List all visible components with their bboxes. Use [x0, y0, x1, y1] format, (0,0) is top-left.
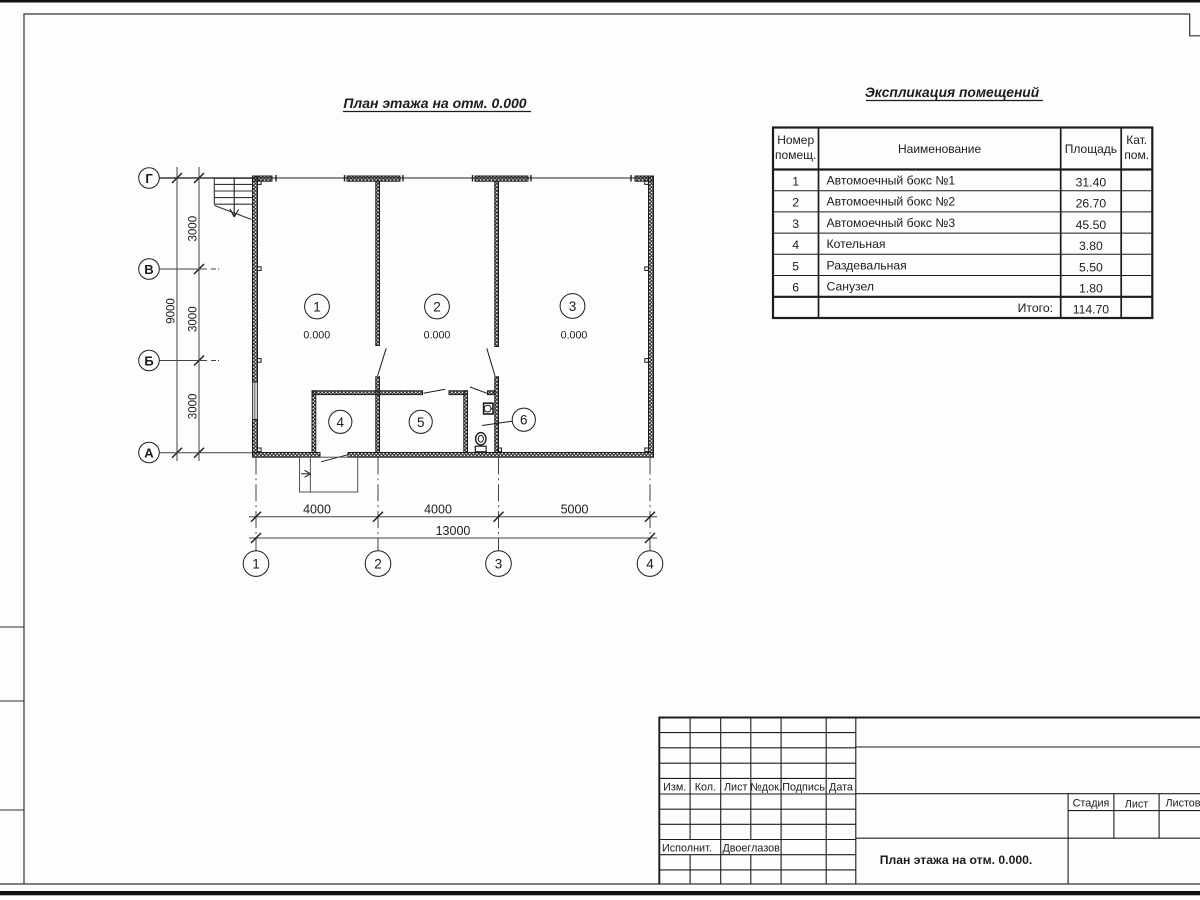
svg-text:3.80: 3.80 [1079, 239, 1103, 253]
svg-text:Лист: Лист [1125, 799, 1149, 811]
svg-text:План этажа на отм. 0.000: План этажа на отм. 0.000 [343, 95, 526, 111]
svg-text:1: 1 [313, 300, 321, 315]
svg-text:Кол.: Кол. [695, 782, 716, 794]
svg-text:Исполнит.: Исполнит. [662, 842, 712, 854]
svg-text:4: 4 [792, 238, 799, 252]
svg-text:0.000: 0.000 [303, 330, 330, 342]
svg-text:5: 5 [792, 259, 799, 273]
svg-text:Раздевальная: Раздевальная [827, 258, 907, 272]
svg-text:9000: 9000 [166, 298, 178, 324]
svg-text:Автомоечный бокс №1: Автомоечный бокс №1 [827, 174, 956, 188]
svg-text:помещ.: помещ. [775, 148, 816, 162]
svg-text:Итого:: Итого: [1018, 301, 1053, 315]
svg-text:5.50: 5.50 [1079, 260, 1103, 274]
svg-text:0.000: 0.000 [561, 330, 588, 342]
svg-text:Дата: Дата [829, 782, 853, 794]
svg-text:Лист: Лист [724, 782, 748, 794]
svg-text:3: 3 [792, 217, 799, 231]
svg-text:Автомоечный бокс №2: Автомоечный бокс №2 [827, 195, 956, 209]
svg-text:114.70: 114.70 [1073, 303, 1110, 317]
svg-text:4000: 4000 [424, 503, 452, 517]
svg-text:13000: 13000 [436, 524, 471, 538]
svg-text:4: 4 [646, 557, 654, 572]
svg-text:Изм.: Изм. [663, 782, 686, 794]
svg-text:0.000: 0.000 [424, 330, 451, 342]
svg-text:Листов: Листов [1165, 798, 1200, 810]
svg-text:1: 1 [792, 175, 799, 189]
svg-text:1.80: 1.80 [1079, 282, 1103, 296]
svg-text:3000: 3000 [188, 216, 200, 242]
svg-text:6: 6 [520, 413, 528, 428]
svg-text:План этажа на отм. 0.000.: План этажа на отм. 0.000. [880, 853, 1033, 867]
svg-text:Котельная: Котельная [827, 237, 886, 251]
svg-text:Двоеглазов: Двоеглазов [723, 842, 781, 854]
svg-text:Б: Б [144, 354, 153, 369]
svg-text:2: 2 [792, 196, 799, 210]
svg-text:31.40: 31.40 [1076, 176, 1107, 190]
svg-text:В: В [144, 262, 153, 277]
svg-text:4000: 4000 [303, 503, 331, 517]
svg-text:3000: 3000 [188, 394, 200, 420]
svg-text:Г: Г [145, 171, 153, 186]
svg-text:2: 2 [433, 300, 441, 315]
svg-text:26.70: 26.70 [1076, 197, 1107, 211]
svg-text:1: 1 [252, 557, 260, 572]
svg-text:6: 6 [792, 281, 799, 295]
svg-text:Автомоечный бокс №3: Автомоечный бокс №3 [827, 216, 956, 230]
svg-text:Номер: Номер [777, 133, 814, 147]
svg-text:Экспликация помещений: Экспликация помещений [865, 85, 1040, 100]
svg-text:Наименование: Наименование [898, 142, 982, 156]
svg-text:5000: 5000 [561, 503, 589, 517]
svg-text:3: 3 [495, 557, 503, 572]
svg-text:2: 2 [374, 557, 382, 572]
svg-text:3: 3 [569, 299, 577, 314]
svg-text:А: А [144, 446, 154, 461]
svg-text:45.50: 45.50 [1076, 218, 1107, 232]
svg-text:пом.: пом. [1124, 148, 1149, 162]
svg-text:Подпись: Подпись [782, 782, 825, 794]
svg-text:3000: 3000 [188, 306, 200, 332]
svg-text:Стадия: Стадия [1073, 798, 1110, 810]
svg-text:5: 5 [417, 415, 425, 430]
svg-text:№док.: №док. [750, 782, 782, 794]
svg-text:Санузел: Санузел [827, 280, 874, 294]
svg-text:Площадь: Площадь [1065, 142, 1117, 156]
svg-text:4: 4 [337, 415, 345, 430]
svg-text:Кат.: Кат. [1126, 133, 1147, 147]
